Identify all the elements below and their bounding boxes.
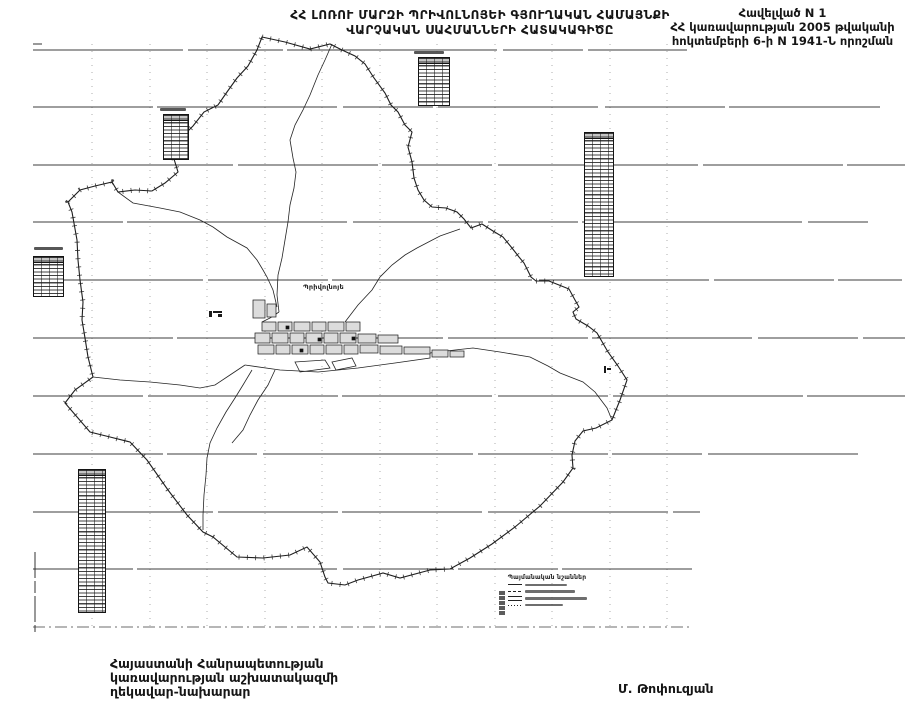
road-south xyxy=(203,370,252,530)
coordinate-table-northwest-title xyxy=(160,108,186,111)
stream-north xyxy=(277,44,332,312)
community-boundary-map xyxy=(0,0,915,727)
signatory-line3: ղեկավար-նախարար xyxy=(110,685,370,699)
administrative-boundary xyxy=(65,37,627,585)
coordinate-table-east xyxy=(584,132,614,277)
double-line-icon xyxy=(508,596,522,601)
signatory-name: Մ. Թոփուզյան xyxy=(618,681,714,696)
signatory-title-block: Հայաստանի Հանրապետության կառավարության ա… xyxy=(110,657,370,699)
village-south-road xyxy=(245,353,430,372)
coordinate-table-northwest xyxy=(163,114,189,160)
coordinate-table-north xyxy=(418,57,450,106)
map-legend: Պայմանական նշաններ xyxy=(494,574,594,608)
annex-note-line3: հոկտեմբերի 6-ի N 1941-Ն որոշման xyxy=(655,34,910,48)
legend-item xyxy=(508,582,594,588)
legend-item xyxy=(508,602,594,608)
coordinate-table-north-title xyxy=(414,51,444,54)
coordinate-table-west-title xyxy=(34,247,63,250)
scanned-map-document: ՀՀ ԼՈՌՈՒ ՄԱՐԶԻ ՊՐԻՎՈԼՆՈՅԵԻ ԳՅՈՒՂԱԿԱՆ ՀԱՄ… xyxy=(0,0,915,727)
legend-item xyxy=(508,596,594,602)
annex-note-line1: Հավելված N 1 xyxy=(655,6,910,20)
dotted-line-icon xyxy=(508,605,522,606)
stream-branch xyxy=(232,370,275,443)
signatory-line1: Հայաստանի Հանրապետության xyxy=(110,657,370,671)
legend-symbol-stack xyxy=(499,591,505,616)
road-northwest xyxy=(118,192,277,307)
document-title-line2: ՎԱՐՉԱԿԱՆ ՍԱՀՄԱՆՆԵՐԻ ՀԱՏԱԿԱԳԻԾԸ xyxy=(250,23,710,38)
annex-note-line2: ՀՀ կառավարության 2005 թվականի xyxy=(655,20,910,34)
document-title: ՀՀ ԼՈՌՈՒ ՄԱՐԶԻ ՊՐԻՎՈԼՆՈՅԵԻ ԳՅՈՒՂԱԿԱՆ ՀԱՄ… xyxy=(250,8,710,37)
legend-title: Պայմանական նշաններ xyxy=(500,574,594,581)
road-southwest xyxy=(93,365,245,388)
road-northeast xyxy=(345,229,460,322)
road-east xyxy=(430,348,612,420)
field-parcel xyxy=(295,360,330,372)
dashed-line-icon xyxy=(508,591,522,592)
annex-note: Հավելված N 1 ՀՀ կառավարության 2005 թվակա… xyxy=(655,6,910,48)
legend-item xyxy=(508,589,594,595)
coordinate-table-west xyxy=(33,256,64,297)
settlement-label: Պրիվոլնոյե xyxy=(303,283,344,291)
coordinate-table-southwest xyxy=(78,469,106,613)
boundary-line-icon xyxy=(508,584,522,585)
settlement-street-grid xyxy=(253,300,464,357)
signatory-line2: կառավարության աշխատակազմի xyxy=(110,671,370,685)
document-title-line1: ՀՀ ԼՈՌՈՒ ՄԱՐԶԻ ՊՐԻՎՈԼՆՈՅԵԻ ԳՅՈՒՂԱԿԱՆ ՀԱՄ… xyxy=(250,8,710,23)
